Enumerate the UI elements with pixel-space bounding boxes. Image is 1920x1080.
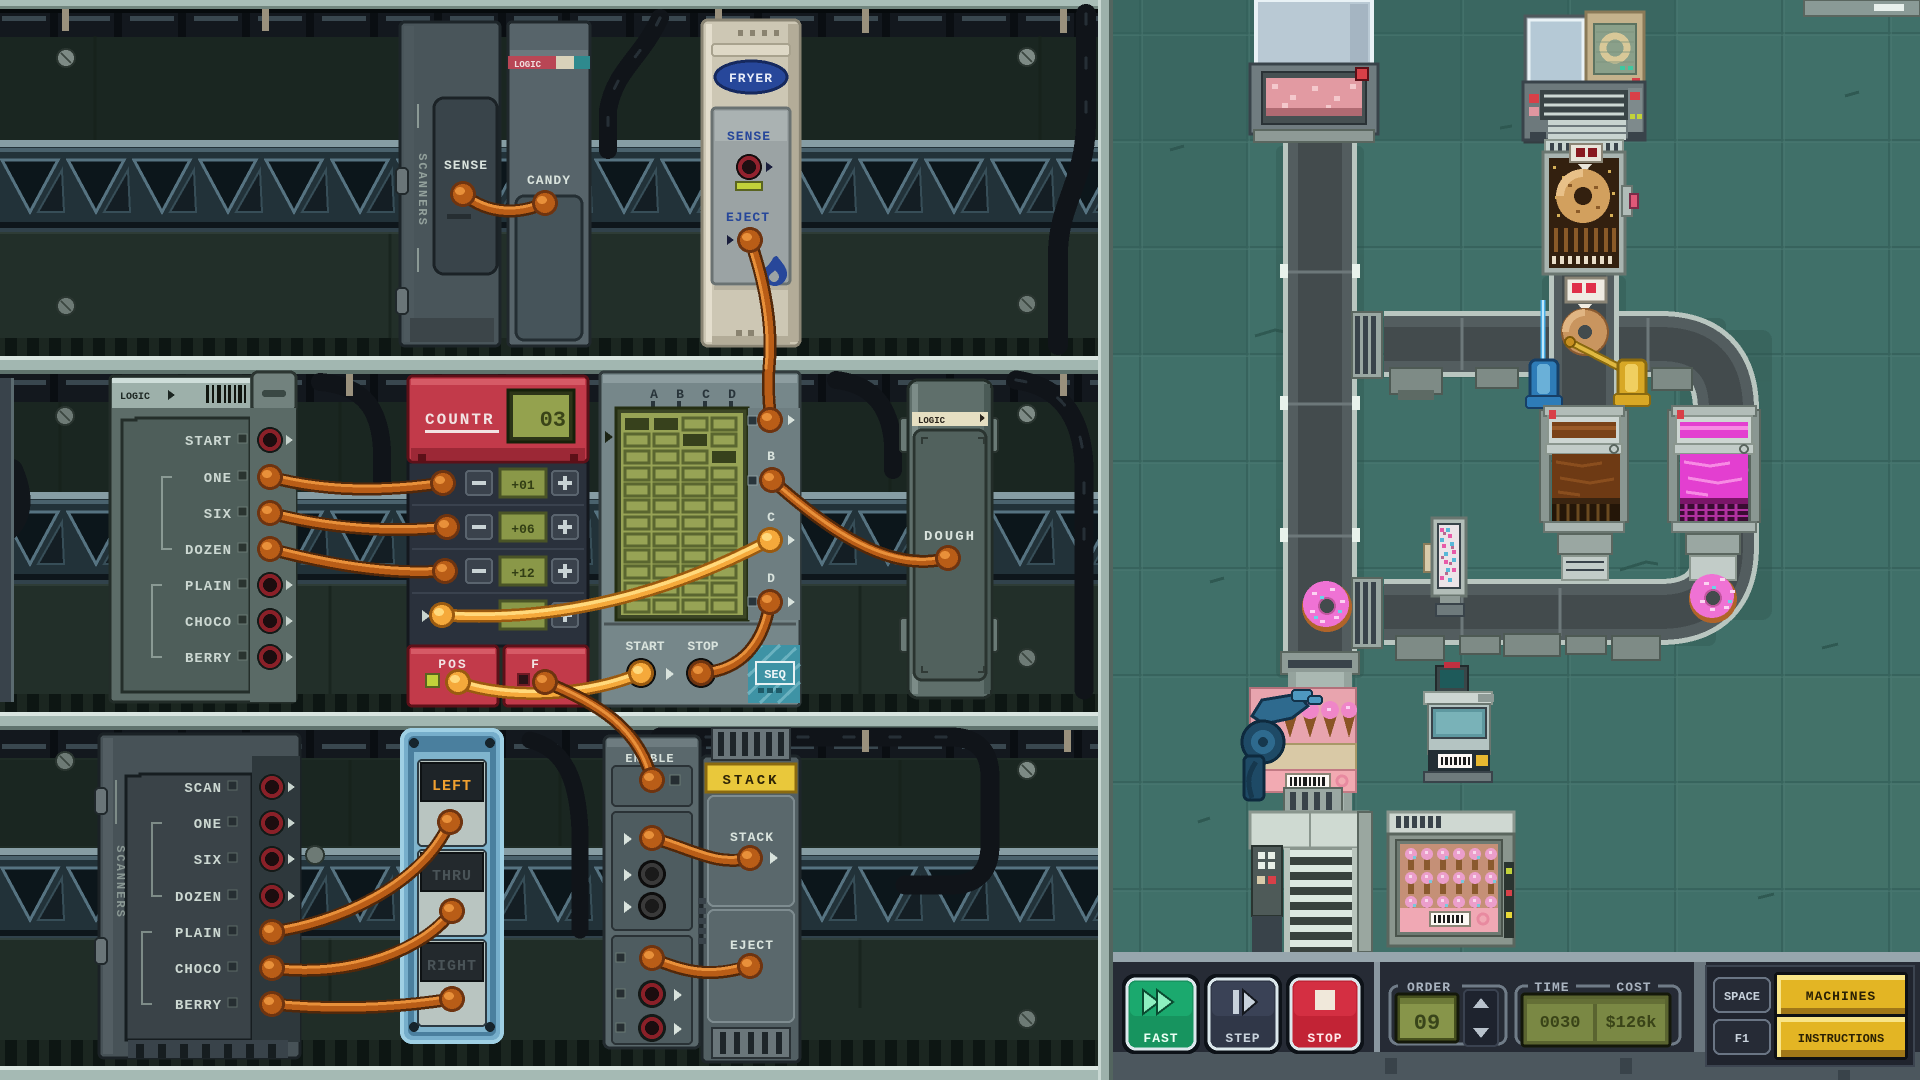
svg-text:CHOCO: CHOCO bbox=[175, 962, 222, 978]
svg-text:SCAN: SCAN bbox=[184, 781, 222, 797]
svg-text:START: START bbox=[185, 434, 232, 450]
svg-text:F: F bbox=[531, 657, 541, 672]
svg-text:+12: +12 bbox=[511, 566, 535, 581]
svg-text:LOGIC: LOGIC bbox=[120, 392, 150, 403]
svg-text:SCANNERS: SCANNERS bbox=[415, 153, 429, 227]
svg-text:COUNTR: COUNTR bbox=[425, 411, 495, 429]
svg-text:C: C bbox=[767, 510, 775, 525]
svg-text:SIX: SIX bbox=[204, 507, 232, 523]
svg-text:PLAIN: PLAIN bbox=[185, 579, 232, 595]
svg-text:B: B bbox=[767, 449, 775, 464]
svg-text:F1: F1 bbox=[1735, 1032, 1749, 1046]
svg-text:D: D bbox=[728, 387, 736, 402]
svg-text:RIGHT: RIGHT bbox=[427, 958, 477, 975]
svg-text:0030: 0030 bbox=[1540, 1014, 1581, 1033]
svg-text:MACHINES: MACHINES bbox=[1806, 989, 1876, 1004]
svg-text:03: 03 bbox=[540, 408, 566, 433]
svg-text:THRU: THRU bbox=[432, 868, 472, 885]
svg-text:+06: +06 bbox=[511, 522, 535, 537]
svg-text:INSTRUCTIONS: INSTRUCTIONS bbox=[1798, 1032, 1884, 1046]
svg-text:PLAIN: PLAIN bbox=[175, 926, 222, 942]
svg-text:STEP: STEP bbox=[1225, 1031, 1260, 1046]
svg-text:SPACE: SPACE bbox=[1724, 990, 1760, 1004]
svg-text:SENSE: SENSE bbox=[444, 158, 488, 173]
svg-text:CHOCO: CHOCO bbox=[185, 615, 232, 631]
svg-text:BERRY: BERRY bbox=[175, 998, 222, 1014]
svg-text:FAST: FAST bbox=[1143, 1031, 1178, 1046]
svg-text:B: B bbox=[676, 387, 684, 402]
svg-text:C: C bbox=[702, 387, 710, 402]
svg-text:STOP: STOP bbox=[687, 639, 718, 654]
svg-text:EJECT: EJECT bbox=[730, 938, 774, 953]
svg-text:DOZEN: DOZEN bbox=[185, 543, 232, 559]
svg-text:SENSE: SENSE bbox=[727, 129, 771, 144]
svg-text:LEFT: LEFT bbox=[432, 778, 472, 795]
svg-text:STACK: STACK bbox=[730, 830, 774, 845]
svg-text:LOGIC: LOGIC bbox=[918, 416, 946, 426]
svg-text:$126k: $126k bbox=[1605, 1014, 1656, 1033]
svg-text:STOP: STOP bbox=[1307, 1031, 1342, 1046]
svg-text:DOZEN: DOZEN bbox=[175, 890, 222, 906]
svg-text:STACK: STACK bbox=[722, 773, 779, 789]
svg-text:ONE: ONE bbox=[204, 471, 232, 487]
svg-text:SEQ: SEQ bbox=[764, 668, 786, 682]
svg-text:CANDY: CANDY bbox=[527, 173, 571, 188]
svg-text:FRYER: FRYER bbox=[729, 71, 773, 86]
svg-text:LOGIC: LOGIC bbox=[514, 60, 542, 70]
svg-text:+01: +01 bbox=[511, 478, 535, 493]
svg-text:D: D bbox=[767, 571, 775, 586]
svg-text:09: 09 bbox=[1414, 1011, 1440, 1036]
svg-text:BERRY: BERRY bbox=[185, 651, 232, 667]
svg-text:START: START bbox=[625, 639, 664, 654]
svg-text:POS: POS bbox=[438, 657, 467, 672]
svg-text:SIX: SIX bbox=[194, 853, 222, 869]
svg-text:A: A bbox=[650, 387, 658, 402]
svg-text:SCANNERS: SCANNERS bbox=[113, 845, 127, 919]
svg-text:EJECT: EJECT bbox=[726, 210, 770, 225]
svg-text:ONE: ONE bbox=[194, 817, 222, 833]
svg-text:DOUGH: DOUGH bbox=[924, 529, 976, 545]
